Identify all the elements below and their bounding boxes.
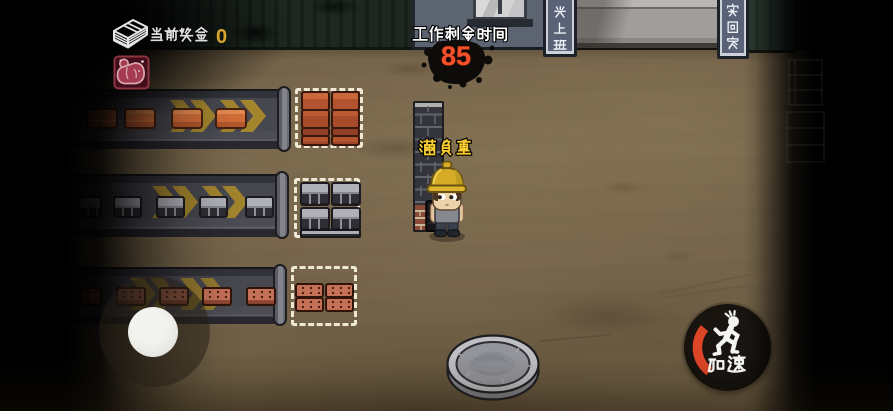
svg-text:0: 0 xyxy=(216,26,227,48)
svg-text:85: 85 xyxy=(441,41,471,71)
